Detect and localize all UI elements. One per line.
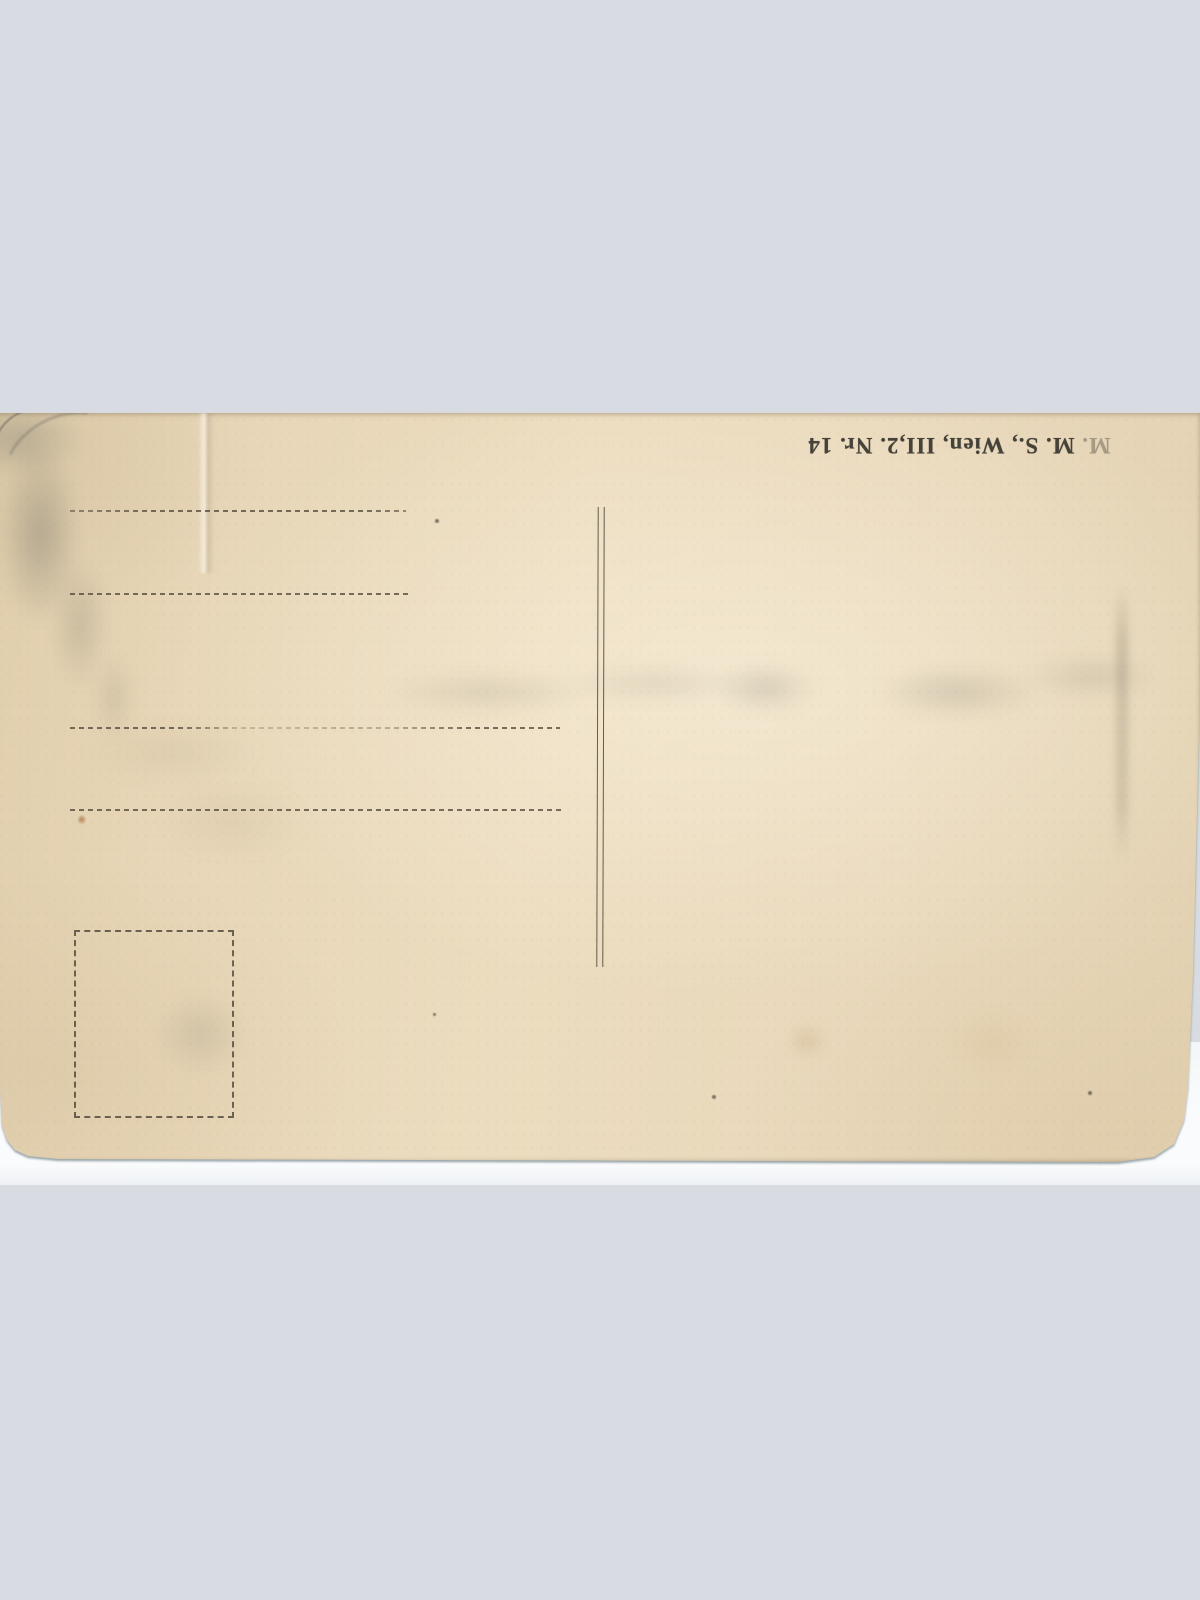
postcard-back: M. M. S., Wien, III,2. Nr. 14 [0,413,1200,1165]
ink-speck [712,1095,716,1099]
paper-crease [198,413,214,573]
ink-showthrough-vertical [1116,585,1128,860]
address-line-3 [70,727,560,729]
imprint-faint-letter: M. [1081,433,1110,458]
ink-speck [1088,1091,1092,1095]
yellow-stain [926,998,1056,1088]
scanner-background: M. M. S., Wien, III,2. Nr. 14 [0,0,1200,1600]
corner-crease-arc [0,394,129,516]
publisher-imprint: M. M. S., Wien, III,2. Nr. 14 [806,425,1112,465]
ink-speck [435,519,439,523]
ink-speck [433,1013,436,1016]
address-line-2 [70,593,408,595]
ink-showthrough-right [843,635,1173,739]
ink-showthrough-center [343,646,823,730]
corner-stain [0,409,222,739]
stamp-box [74,930,234,1118]
address-line-4 [70,809,562,811]
divider-line [596,507,604,967]
corner-crease-arc-small [0,397,65,477]
rust-spot [78,815,86,825]
address-line-1 [70,510,406,512]
imprint-text: M. S., Wien, III,2. Nr. 14 [807,433,1081,458]
brown-smudge [775,1013,839,1069]
